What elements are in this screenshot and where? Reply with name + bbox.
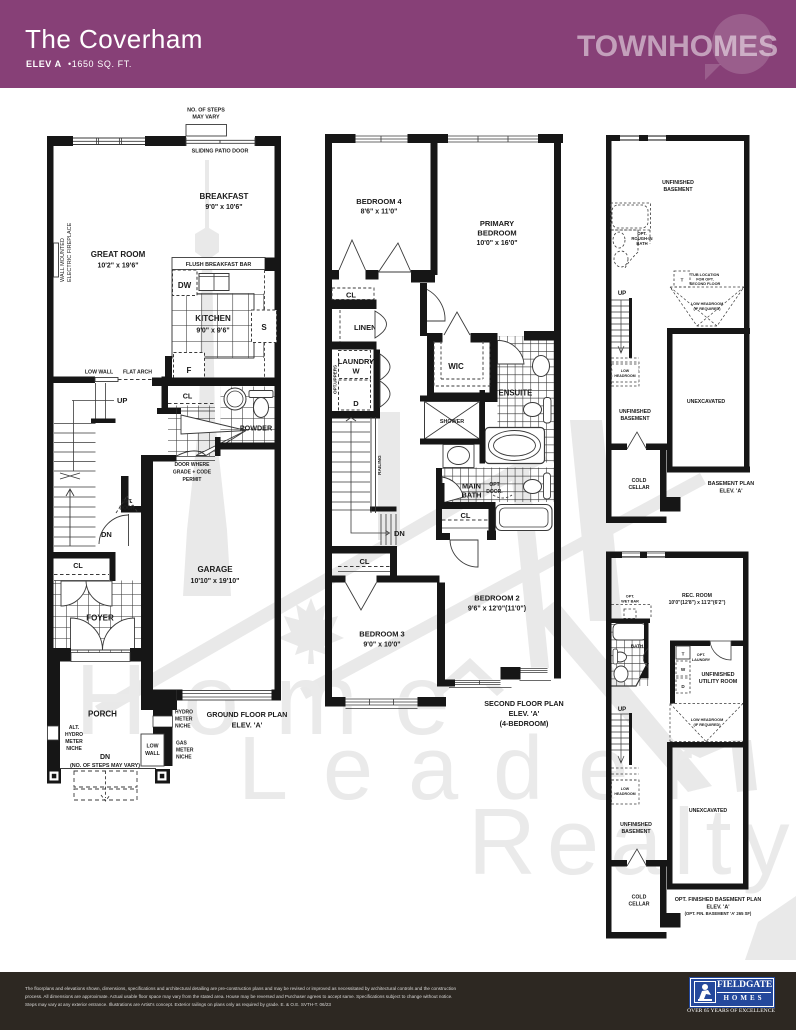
svg-text:UNEXCAVATED: UNEXCAVATED	[687, 399, 726, 405]
svg-text:OPT.UPPERS: OPT.UPPERS	[333, 365, 338, 394]
svg-text:CELLAR: CELLAR	[628, 485, 649, 491]
svg-text:ENSUITE: ENSUITE	[499, 389, 533, 398]
svg-text:LOW: LOW	[621, 369, 630, 373]
svg-text:ELEV. 'A': ELEV. 'A'	[706, 905, 729, 911]
svg-text:LOW: LOW	[621, 787, 630, 791]
svg-text:CL: CL	[183, 392, 193, 401]
svg-text:BATH: BATH	[462, 491, 482, 500]
svg-text:WET BAR: WET BAR	[621, 600, 639, 604]
svg-text:OPT.: OPT.	[626, 595, 634, 599]
svg-text:T: T	[681, 278, 684, 283]
svg-text:LOW HEADROOM: LOW HEADROOM	[691, 302, 723, 306]
svg-text:CL: CL	[346, 291, 356, 300]
svg-text:ELEV. 'A': ELEV. 'A'	[719, 489, 742, 495]
svg-text:FLUSH BREAKFAST BAR: FLUSH BREAKFAST BAR	[186, 262, 252, 268]
svg-text:DOOR WHERE: DOOR WHERE	[175, 462, 211, 468]
svg-text:BEDROOM 4: BEDROOM 4	[356, 197, 402, 206]
svg-text:10'0"(12'8") x 11'2"(6'2"): 10'0"(12'8") x 11'2"(6'2")	[669, 600, 726, 606]
svg-text:UP: UP	[618, 707, 626, 713]
svg-text:POWDER: POWDER	[240, 424, 273, 433]
svg-text:HEADROOM: HEADROOM	[614, 374, 635, 378]
svg-text:UNFINISHED: UNFINISHED	[702, 672, 735, 678]
svg-text:FOR OPT.: FOR OPT.	[696, 278, 714, 282]
svg-text:COLD: COLD	[632, 895, 647, 901]
svg-text:MAIN: MAIN	[462, 482, 481, 491]
svg-text:W: W	[681, 667, 686, 672]
svg-text:LINEN: LINEN	[354, 323, 377, 332]
svg-text:ELEV. 'A': ELEV. 'A'	[509, 709, 540, 718]
svg-text:METER: METER	[65, 739, 83, 745]
svg-text:(IF REQUIRED): (IF REQUIRED)	[694, 723, 722, 727]
svg-text:PERMIT: PERMIT	[183, 477, 202, 483]
svg-text:WALL MOUNTED: WALL MOUNTED	[60, 238, 66, 282]
svg-text:PRIMARY: PRIMARY	[480, 219, 514, 228]
svg-text:UNEXCAVATED: UNEXCAVATED	[689, 808, 728, 814]
svg-text:GARAGE: GARAGE	[197, 565, 233, 574]
svg-text:CL: CL	[360, 557, 370, 566]
svg-text:FLAT ARCH: FLAT ARCH	[123, 370, 152, 376]
svg-text:BEDROOM 3: BEDROOM 3	[359, 630, 404, 639]
svg-text:METER: METER	[175, 717, 193, 723]
svg-text:10'0" x 16'0": 10'0" x 16'0"	[476, 240, 517, 247]
svg-text:NICHE: NICHE	[176, 755, 192, 761]
svg-text:SECOND FLOOR PLAN: SECOND FLOOR PLAN	[484, 699, 563, 708]
svg-text:9'0" x 10'6": 9'0" x 10'6"	[205, 204, 242, 211]
svg-text:LOW WALL: LOW WALL	[85, 370, 114, 376]
svg-text:NICHE: NICHE	[175, 724, 191, 730]
svg-text:ELEV. 'A': ELEV. 'A'	[232, 721, 263, 730]
svg-text:CL: CL	[73, 561, 83, 570]
svg-text:BATH: BATH	[631, 644, 644, 649]
svg-text:REC. ROOM: REC. ROOM	[682, 593, 712, 599]
svg-text:OPT: OPT	[489, 482, 499, 488]
svg-text:TUB LOCATION: TUB LOCATION	[691, 273, 720, 277]
svg-text:D: D	[353, 399, 359, 408]
svg-text:GAS: GAS	[176, 741, 188, 747]
svg-text:UTILITY ROOM: UTILITY ROOM	[699, 679, 738, 685]
svg-text:BASEMENT: BASEMENT	[620, 416, 650, 422]
svg-text:PORCH: PORCH	[88, 710, 117, 719]
svg-text:BASEMENT: BASEMENT	[621, 829, 651, 835]
svg-text:(4-BEDROOM): (4-BEDROOM)	[500, 719, 549, 728]
svg-text:9'0" x 9'6": 9'0" x 9'6"	[196, 328, 229, 335]
svg-text:(OPT. FIN. BASEMENT 'A' 265 SF: (OPT. FIN. BASEMENT 'A' 265 SF)	[685, 911, 752, 916]
svg-text:ALT.: ALT.	[69, 725, 80, 731]
svg-text:W: W	[352, 367, 360, 376]
svg-text:F: F	[187, 366, 192, 375]
svg-text:UNFINISHED: UNFINISHED	[620, 822, 652, 828]
svg-text:8'6" x 11'0": 8'6" x 11'0"	[361, 209, 398, 216]
svg-text:SLIDING PATIO DOOR: SLIDING PATIO DOOR	[192, 149, 249, 155]
svg-text:S: S	[261, 323, 267, 332]
svg-text:UNFINISHED: UNFINISHED	[619, 409, 651, 415]
svg-text:CL: CL	[461, 511, 471, 520]
svg-text:HYDRO: HYDRO	[65, 732, 83, 738]
svg-text:UNFINISHED: UNFINISHED	[662, 180, 694, 186]
svg-text:DN: DN	[100, 754, 110, 761]
svg-text:10'10" x 19'10": 10'10" x 19'10"	[191, 578, 240, 585]
svg-text:NO. OF STEPS: NO. OF STEPS	[187, 108, 225, 114]
svg-text:DW: DW	[178, 281, 192, 290]
svg-text:FOYER: FOYER	[86, 614, 114, 623]
svg-text:T: T	[682, 652, 685, 657]
svg-text:ELECTRIC FIREPLACE: ELECTRIC FIREPLACE	[67, 222, 73, 282]
svg-text:HYDRO: HYDRO	[175, 710, 193, 716]
svg-text:BASEMENT: BASEMENT	[663, 187, 693, 193]
svg-text:9'6" x 12'0"(11'0"): 9'6" x 12'0"(11'0")	[468, 606, 526, 613]
svg-text:OPT.: OPT.	[697, 653, 705, 657]
svg-text:BEDROOM: BEDROOM	[477, 229, 516, 238]
svg-text:GROUND FLOOR PLAN: GROUND FLOOR PLAN	[207, 710, 288, 719]
svg-text:OPT.: OPT.	[121, 499, 133, 505]
svg-text:KITCHEN: KITCHEN	[195, 314, 231, 323]
svg-text:DOOR: DOOR	[120, 506, 135, 512]
svg-text:10'2" x 19'6": 10'2" x 19'6"	[97, 263, 138, 270]
svg-text:UP: UP	[117, 396, 127, 405]
svg-text:LOW HEADROOM: LOW HEADROOM	[691, 718, 723, 722]
svg-text:CELLAR: CELLAR	[628, 902, 649, 908]
svg-text:WIC: WIC	[448, 362, 464, 371]
svg-text:GREAT ROOM: GREAT ROOM	[91, 250, 146, 259]
svg-text:MAY VARY: MAY VARY	[192, 115, 220, 121]
svg-text:SHOWER: SHOWER	[440, 419, 464, 425]
svg-text:DOOR.: DOOR.	[486, 489, 503, 495]
svg-text:LAUNDRY: LAUNDRY	[338, 357, 374, 366]
svg-text:SECOND FLOOR: SECOND FLOOR	[690, 282, 721, 286]
svg-text:COLD: COLD	[632, 478, 647, 484]
svg-text:METER: METER	[176, 748, 194, 754]
svg-text:UP: UP	[618, 291, 626, 297]
svg-text:NICHE: NICHE	[66, 746, 82, 752]
svg-text:HEADROOM: HEADROOM	[614, 792, 635, 796]
svg-text:WALL: WALL	[145, 751, 161, 757]
svg-text:GRADE + CODE: GRADE + CODE	[173, 470, 212, 476]
svg-text:BATH: BATH	[636, 241, 647, 246]
svg-text:OPT. FINISHED BASEMENT PLAN: OPT. FINISHED BASEMENT PLAN	[675, 897, 762, 903]
svg-text:LOW: LOW	[146, 744, 158, 750]
svg-text:BREAKFAST: BREAKFAST	[200, 192, 249, 201]
svg-text:LAUNDRY: LAUNDRY	[692, 658, 711, 662]
svg-text:(IF REQUIRED): (IF REQUIRED)	[694, 307, 722, 311]
svg-text:RAILING: RAILING	[377, 455, 383, 475]
svg-text:9'0" x 10'0": 9'0" x 10'0"	[363, 642, 400, 649]
svg-text:BEDROOM 2: BEDROOM 2	[474, 594, 519, 603]
svg-text:BASEMENT PLAN: BASEMENT PLAN	[708, 481, 755, 487]
svg-text:D: D	[681, 684, 685, 689]
